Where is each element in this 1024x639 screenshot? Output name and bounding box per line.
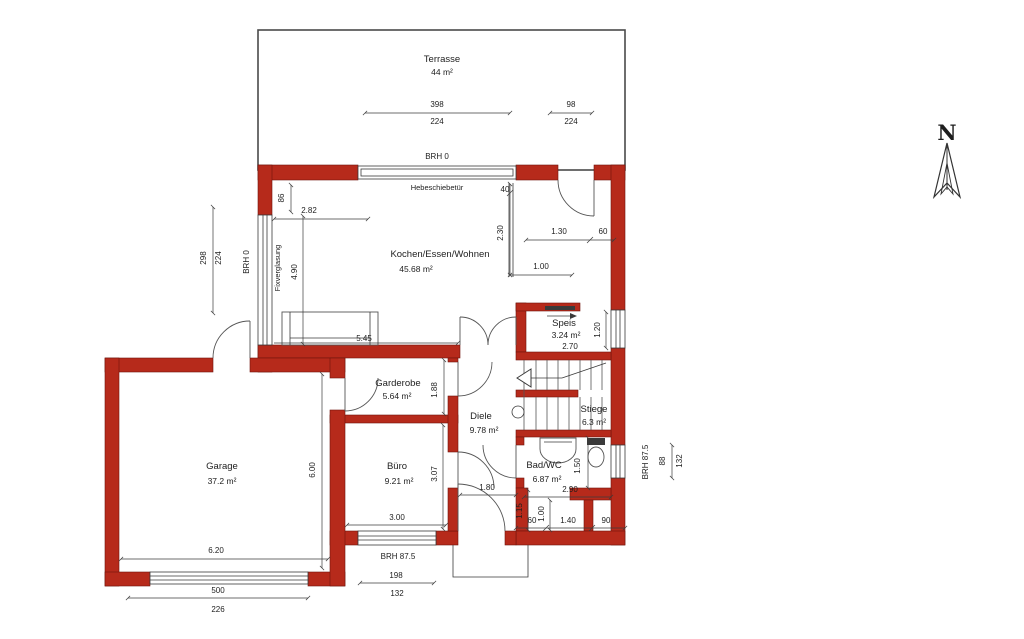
dim-buero-win-b: 132 [390, 589, 404, 598]
dim-terrace-width-cm: 224 [430, 117, 444, 126]
annotation-brh-south: BRH 87.5 [381, 552, 416, 561]
dim-kitchen-width: 2.82 [301, 206, 317, 215]
dim-east-win-a: 88 [658, 456, 667, 465]
stair-post [512, 406, 524, 418]
dim-vest-d: 1.40 [560, 516, 576, 525]
dim-counter-c: 1.00 [533, 262, 549, 271]
room-label-terrasse: Terrasse [424, 54, 460, 65]
room-area-terrasse: 44 m² [431, 67, 453, 77]
badwc-door [483, 445, 516, 478]
room-label-kochen: Kochen/Essen/Wohnen [390, 249, 489, 260]
toilet [587, 438, 605, 467]
badwc-window-east [611, 445, 625, 478]
room-area-diele: 9.78 m² [470, 425, 499, 435]
floor-plan-page: Terrasse 44 m² 398 224 98 224 BRH 0 [0, 0, 1024, 639]
dim-terrace-door-m: 98 [567, 100, 576, 109]
room-area-badwc: 6.87 m² [533, 474, 562, 484]
room-label-speis: Speis [552, 318, 576, 329]
room-area-buero: 9.21 m² [385, 476, 414, 486]
room-area-garage: 37.2 m² [208, 476, 237, 486]
dim-win-offset: 86 [277, 193, 286, 202]
room-area-garderobe: 5.64 m² [383, 391, 412, 401]
dim-west-win-a: 298 [199, 251, 208, 265]
north-label: N [937, 120, 956, 145]
annotation-fixverglasung: Fixverglasung [273, 245, 282, 292]
garderobe-diele-door [458, 362, 492, 396]
annotation-brh-top: BRH 0 [425, 152, 449, 161]
room-area-kochen: 45.68 m² [399, 264, 433, 274]
dim-buero-win-a: 198 [389, 571, 403, 580]
dim-kitchen-depth: 2.30 [496, 225, 505, 241]
dim-badwc-width: 2.90 [562, 485, 578, 494]
fixverglasung-window [258, 215, 272, 345]
dim-buero-depth: 3.07 [430, 466, 439, 482]
dim-west-win-b: 224 [214, 251, 223, 265]
terrace-door [558, 180, 594, 216]
dim-terrace-width-m: 398 [430, 100, 444, 109]
annotation-brh-west: BRH 0 [242, 250, 251, 274]
dim-counter-a: 1.30 [551, 227, 567, 236]
annotation-hebeschiebetuer: Hebeschiebetür [411, 183, 464, 192]
kitchen-screen [509, 183, 513, 277]
dim-garage-door-b: 226 [211, 605, 225, 614]
dim-diele-width: 1.80 [479, 483, 495, 492]
dim-vest-e: 90 [602, 516, 611, 525]
room-label-badwc: Bad/WC [526, 460, 562, 471]
dim-terrace-door-cm: 224 [564, 117, 578, 126]
bueroo-window [358, 531, 436, 545]
dim-buero-width: 3.00 [389, 513, 405, 522]
room-area-stiege: 6.3 m² [582, 417, 606, 427]
dim-vest-a: 1.15 [515, 503, 524, 519]
annotation-brh-east: BRH 87.5 [641, 444, 650, 479]
speis-window-east [611, 310, 625, 348]
dim-east-win-b: 132 [675, 454, 684, 468]
garage-side-door [213, 321, 250, 358]
room-area-speis: 3.24 m² [552, 330, 581, 340]
room-label-diele: Diele [470, 411, 492, 422]
garage-garderobe-door [345, 378, 378, 411]
dim-badwc-depth: 1.50 [573, 458, 582, 474]
dim-garage-depth: 6.00 [308, 462, 317, 478]
dim-garage-door-a: 500 [211, 586, 225, 595]
dim-vest-b: 1.00 [537, 506, 546, 522]
dim-speis-width: 2.70 [562, 342, 578, 351]
hebeschiebetuer-window [358, 166, 516, 179]
dim-counter-b: 60 [599, 227, 608, 236]
entry-porch [453, 545, 528, 577]
dim-garage-width: 6.20 [208, 546, 224, 555]
dim-speis-depth: 1.20 [593, 322, 602, 338]
dim-fix-glazing: 4.90 [290, 264, 299, 280]
living-double-door [460, 317, 516, 345]
dim-vest-c: 60 [528, 516, 537, 525]
room-label-garage: Garage [206, 461, 238, 472]
room-label-garderobe: Garderobe [375, 378, 420, 389]
north-arrow: N [934, 120, 960, 197]
garage-door [150, 572, 308, 584]
dim-living-bottom: 5.45 [356, 334, 372, 343]
dim-garderobe-depth: 1.88 [430, 382, 439, 398]
room-label-stiege: Stiege [581, 404, 608, 415]
room-label-buero: Büro [387, 461, 407, 472]
floor-plan-drawing: Terrasse 44 m² 398 224 98 224 BRH 0 [0, 0, 1024, 639]
dim-niche: 40 [501, 185, 510, 194]
